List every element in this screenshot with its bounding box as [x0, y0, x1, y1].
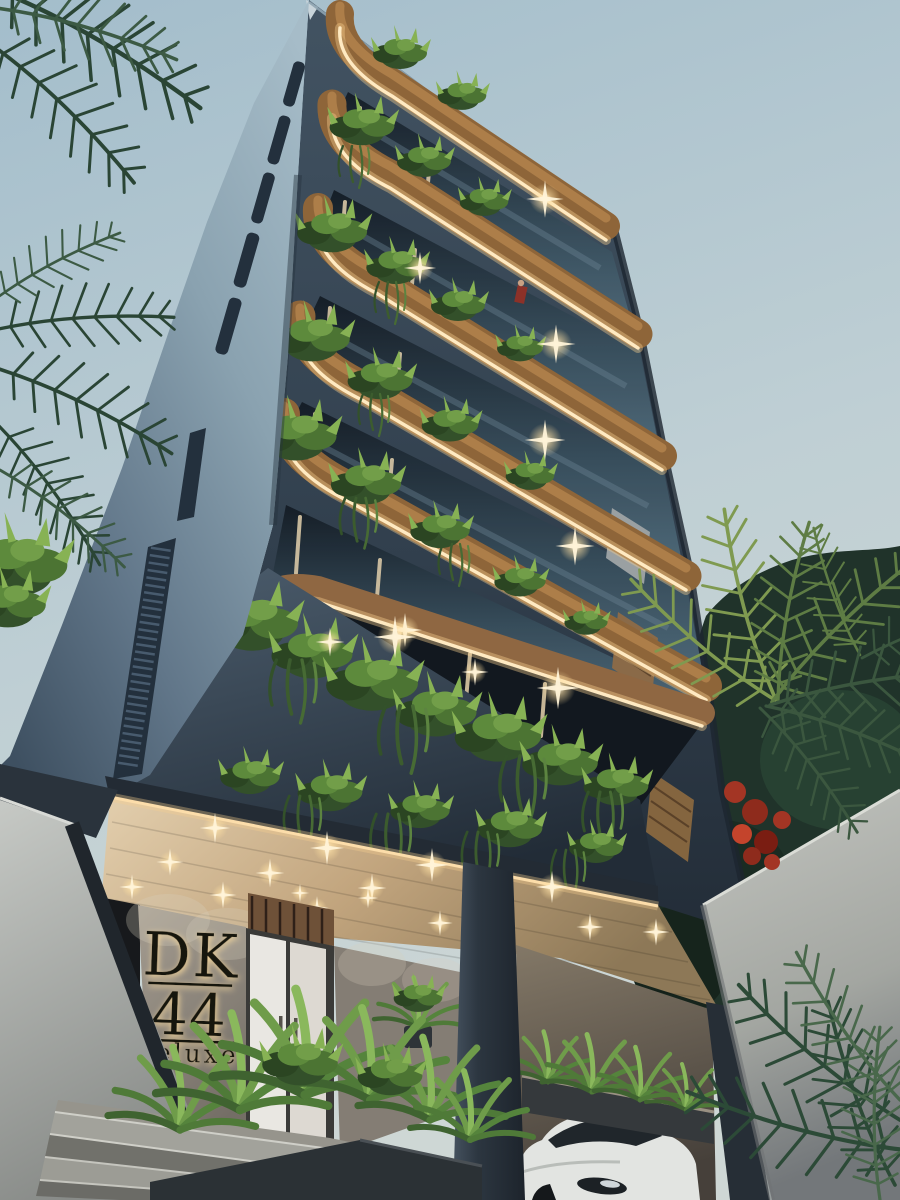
- scene-canvas: DK 44 deluxe: [0, 0, 900, 1200]
- architectural-render: DK 44 deluxe: [0, 0, 900, 1200]
- canopy-column-center: [453, 862, 525, 1200]
